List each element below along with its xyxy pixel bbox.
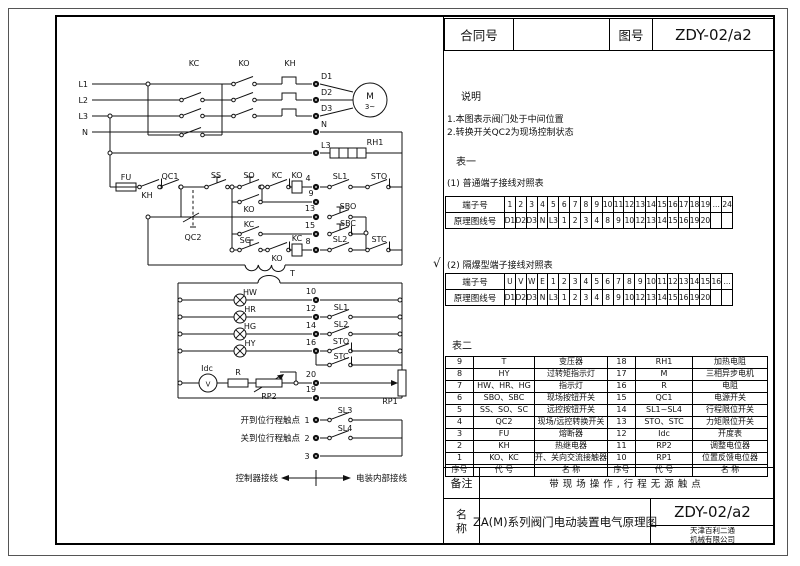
legend-internal-label: 电装内部接线 (356, 473, 408, 484)
terminal-table-row: 端子号 12345678910111213141516171819...24 (446, 197, 732, 213)
table-cell: N (538, 290, 549, 305)
hw-label: HW (243, 288, 257, 297)
close-limit-label: 关到位行程触点 (240, 433, 300, 444)
drawing-sheet: M 3~ L1 L2 L3 N KC KO KH D1 D2 D3 N L3 R… (0, 0, 800, 566)
table-cell: 16 (679, 213, 690, 228)
drawing-number: ZDY-02/a2 (651, 499, 774, 526)
seq-cell: 11 (608, 441, 636, 452)
rp2-symbol (256, 379, 282, 387)
seq-cell: 1 (446, 453, 474, 464)
legend-controller-label: 控制器接线 (235, 473, 278, 484)
table-cell: 20 (700, 290, 711, 305)
table-cell: D1 (505, 290, 516, 305)
sc-label: SC (240, 236, 251, 245)
note-item-2: 2.转换开关QC2为现场控制状态 (447, 125, 574, 138)
sbo-label: SBO (340, 202, 357, 211)
component-row: 7 HW、HR、HG 指示灯 16 R 电阻 (446, 381, 767, 393)
table-cell: D2 (516, 290, 527, 305)
name-cell: 变压器 (535, 357, 608, 368)
open-limit-label: 开到位行程触点 (240, 415, 300, 426)
row-label: 端子号 (446, 197, 505, 212)
so-label: SO (243, 171, 254, 180)
table-cell: E (538, 274, 549, 289)
name-cell: 热继电器 (535, 441, 608, 452)
name-cell: 调整电位器 (693, 441, 767, 452)
table-cell: 4 (592, 290, 603, 305)
component-row: 1 KO、KC 开、关向交流接触器 10 RP1 位置反馈电位器 (446, 453, 767, 465)
ko-interlock-label: KO (271, 254, 282, 263)
component-row: 6 SBO、SBC 现场按钮开关 15 QC1 电源开关 (446, 393, 767, 405)
company-line2: 机械有限公司 (690, 535, 735, 544)
terminal-table-row: 原理图线号 D1D2D3NL31234891012131415161920 (446, 213, 732, 228)
table-cell: 12 (635, 213, 646, 228)
table-cell: 1 (559, 290, 570, 305)
seq-cell: 17 (608, 369, 636, 380)
table-cell: 1 (559, 213, 570, 228)
code-cell: SBO、SBC (474, 393, 535, 404)
table-cell: 3 (581, 290, 592, 305)
component-row: 4 QC2 现场/远控转换开关 13 STO、STC 力矩限位开关 (446, 417, 767, 429)
name-label-char1: 名 (456, 508, 467, 522)
table-cell: 14 (690, 274, 701, 289)
component-row: 5 SS、SO、SC 远控按钮开关 14 SL1~SL4 行程限位开关 (446, 405, 767, 417)
seq-cell: 9 (446, 357, 474, 368)
table-cell: 18 (690, 197, 701, 212)
kh-label: KH (284, 59, 295, 68)
name-cell: 现场/远控转换开关 (535, 417, 608, 428)
table-cell: 7 (614, 274, 625, 289)
table-cell: ... (722, 274, 732, 289)
table-cell: 16 (711, 274, 722, 289)
table-cell: 12 (635, 290, 646, 305)
table-cell: 15 (700, 274, 711, 289)
sl1-lamp-label: SL1 (334, 303, 349, 312)
terminal-15-label: 15 (305, 221, 315, 230)
name-cell: 开、关向交流接触器 (535, 453, 608, 464)
name-label-char2: 称 (456, 522, 467, 536)
table-cell: V (516, 274, 527, 289)
contract-label: 合同号 (445, 19, 514, 50)
sl2-lamp-label: SL2 (334, 320, 349, 329)
table-cell (711, 290, 722, 305)
table-cell: W (527, 274, 538, 289)
table2-heading: 表二 (452, 337, 472, 352)
kc-aux-label: KC (244, 220, 255, 229)
name-cell: 现场按钮开关 (535, 393, 608, 404)
seq-cell: 15 (608, 393, 636, 404)
table-cell: 5 (548, 197, 559, 212)
name-cell: 力矩限位开关 (693, 417, 767, 428)
code-cell: Idc (636, 429, 693, 440)
terminal-1-label: 1 (304, 416, 309, 425)
code-cell: QC2 (474, 417, 535, 428)
table-cell (722, 290, 732, 305)
kh-contact-label: KH (141, 191, 152, 200)
drawing-no-label: 图号 (610, 19, 653, 50)
table-cell: 2 (570, 213, 581, 228)
terminal-table-normal: 端子号 12345678910111213141516171819...24 原… (445, 196, 733, 229)
motor-phase-label: 3~ (365, 103, 375, 111)
table-cell: 6 (559, 197, 570, 212)
name-cell: 指示灯 (535, 381, 608, 392)
title-block-footer: 备注 带现场操作,行程无源触点 名 称 ZA(M)系列阀门电动装置电气原理图 Z… (443, 467, 775, 545)
remark-row: 备注 带现场操作,行程无源触点 (444, 468, 774, 499)
table-cell: 10 (603, 197, 614, 212)
table-cell: 11 (614, 197, 625, 212)
table-cell: 20 (700, 213, 711, 228)
idc-label: Idc (201, 364, 213, 373)
table-cell: 9 (614, 213, 625, 228)
name-cell: 过转矩指示灯 (535, 369, 608, 380)
table-cell: 10 (624, 290, 635, 305)
terminal-3-label: 3 (304, 452, 309, 461)
code-cell: T (474, 357, 535, 368)
table-cell: 19 (700, 197, 711, 212)
terminal-13-label: 13 (305, 204, 315, 213)
table-cell: 1 (505, 197, 516, 212)
name-cell: 三相异步电机 (693, 369, 767, 380)
table-cell: 15 (657, 197, 668, 212)
terminal-16-label: 16 (306, 338, 316, 347)
wire-numbers: D1D2D3NL31234891012131415161920 (505, 290, 732, 305)
rp1-label: RP1 (382, 397, 397, 406)
seq-cell: 14 (608, 405, 636, 416)
terminal-numbers: 12345678910111213141516171819...24 (505, 197, 732, 212)
company-line1: 天津百利二通 (690, 526, 735, 535)
terminal-l3-label: L3 (321, 141, 331, 150)
name-cell: 加热电阻 (693, 357, 767, 368)
note-item-1: 1.本图表示阀门处于中间位置 (447, 112, 564, 125)
table-cell: 19 (690, 290, 701, 305)
ko-coil-symbol (292, 181, 302, 193)
code-cell: STO、STC (636, 417, 693, 428)
table-cell: 16 (668, 197, 679, 212)
name-cell: 电阻 (693, 381, 767, 392)
table-cell: 1 (548, 274, 559, 289)
remark-label: 备注 (444, 468, 480, 498)
table-cell: 19 (690, 213, 701, 228)
terminal-9-label: 9 (308, 189, 313, 198)
terminal-n-label: N (321, 120, 327, 129)
seq-cell: 10 (608, 453, 636, 464)
ko-aux-label: KO (243, 205, 254, 214)
table-cell: 14 (657, 213, 668, 228)
table1-heading: 表一 (456, 153, 476, 168)
table-cell: 16 (679, 290, 690, 305)
table-cell: 15 (668, 213, 679, 228)
sl3-label: SL3 (338, 406, 353, 415)
drawing-no-value: ZDY-02/a2 (653, 19, 774, 50)
table-cell: 3 (527, 197, 538, 212)
table-cell: 13 (646, 213, 657, 228)
table-cell: L3 (548, 290, 559, 305)
panel-divider (443, 15, 444, 545)
motor-label: M (366, 92, 374, 102)
table-cell: 13 (646, 290, 657, 305)
legend-left-arrow (281, 475, 289, 481)
terminal-table-row: 原理图线号 D1D2D3NL31234891012131415161920 (446, 290, 732, 305)
r-label: R (235, 368, 241, 377)
table-cell: ... (711, 197, 722, 212)
wire-numbers: D1D2D3NL31234891012131415161920 (505, 213, 732, 228)
company-name: 天津百利二通 机械有限公司 (651, 526, 774, 545)
line-l1-label: L1 (78, 80, 88, 89)
table-cell: D3 (527, 213, 538, 228)
wiring-legend (283, 470, 349, 486)
name-cell: 位置反馈电位器 (693, 453, 767, 464)
row-label: 原理图线号 (446, 290, 505, 305)
sl2-label: SL2 (333, 235, 348, 244)
code-cell: HY (474, 369, 535, 380)
sto-lamp-label: STO (333, 337, 349, 346)
table-cell: 10 (624, 213, 635, 228)
terminal-numbers: UVWE12345678910111213141516... (505, 274, 732, 289)
table-cell: 9 (614, 290, 625, 305)
name-cell: 远控按钮开关 (535, 405, 608, 416)
table-cell: 7 (570, 197, 581, 212)
table-cell: 5 (592, 274, 603, 289)
table-cell: 2 (570, 290, 581, 305)
table-cell: D1 (505, 213, 516, 228)
component-row: 3 FU 熔断器 12 Idc 开度表 (446, 429, 767, 441)
contract-value (514, 19, 610, 50)
rp1-wiper-arrow (391, 380, 398, 386)
seq-cell: 13 (608, 417, 636, 428)
seq-cell: 16 (608, 381, 636, 392)
table-cell: 9 (592, 197, 603, 212)
name-cell: 开度表 (693, 429, 767, 440)
sbc-label: SBC (340, 219, 356, 228)
terminal-14-label: 14 (306, 321, 316, 330)
terminal-10-label: 10 (306, 287, 316, 296)
table-cell: 15 (668, 290, 679, 305)
table-cell: 13 (679, 274, 690, 289)
table-cell: 14 (657, 290, 668, 305)
seq-cell: 12 (608, 429, 636, 440)
table-cell: D3 (527, 290, 538, 305)
seq-cell: 18 (608, 357, 636, 368)
title-strip: 合同号 图号 ZDY-02/a2 (444, 18, 775, 51)
table-cell (722, 213, 732, 228)
table-cell: 4 (581, 274, 592, 289)
terminal-20-label: 20 (306, 370, 316, 379)
rp2-label: RP2 (261, 392, 276, 401)
kc-interlock-label: KC (272, 171, 283, 180)
table-cell: 10 (646, 274, 657, 289)
code-cell: R (636, 381, 693, 392)
component-row: 2 KH 热继电器 11 RP2 调整电位器 (446, 441, 767, 453)
sto-label: STO (371, 172, 387, 181)
terminal-12-label: 12 (306, 304, 316, 313)
ko-label: KO (238, 59, 249, 68)
control-wiring (110, 187, 402, 283)
code-cell: M (636, 369, 693, 380)
terminal-4-label: 4 (305, 174, 310, 183)
sl1-label: SL1 (333, 172, 348, 181)
table-cell: 8 (603, 290, 614, 305)
hg-label: HG (244, 322, 256, 331)
table-cell: 24 (722, 197, 732, 212)
seq-cell: 7 (446, 381, 474, 392)
seq-cell: 5 (446, 405, 474, 416)
code-cell: RH1 (636, 357, 693, 368)
name-cell: 熔断器 (535, 429, 608, 440)
table-cell: 8 (603, 213, 614, 228)
table-cell: 8 (581, 197, 592, 212)
qc1-label: QC1 (162, 172, 179, 181)
table-cell: 4 (592, 213, 603, 228)
table-cell: 12 (668, 274, 679, 289)
remark-text: 带现场操作,行程无源触点 (480, 468, 774, 498)
row-label: 端子号 (446, 274, 505, 289)
kc-coil-label: KC (292, 234, 303, 243)
terminal-d1-label: D1 (321, 72, 332, 81)
table-cell: 2 (559, 274, 570, 289)
ko-coil-label: KO (291, 171, 302, 180)
table-cell: 17 (679, 197, 690, 212)
qc2-label: QC2 (185, 233, 202, 242)
component-table: 9 T 变压器 18 RH1 加热电阻 8 HY 过转矩指示灯 17 M 三相异… (445, 356, 768, 477)
hr-label: HR (244, 305, 256, 314)
kc-coil-symbol (292, 244, 302, 256)
sl4-label: SL4 (338, 424, 353, 433)
table-cell: 2 (516, 197, 527, 212)
code-cell: RP1 (636, 453, 693, 464)
name-row: 名 称 ZA(M)系列阀门电动装置电气原理图 ZDY-02/a2 天津百利二通 … (444, 499, 774, 545)
limit-wiring (320, 420, 402, 456)
component-row: 9 T 变压器 18 RH1 加热电阻 (446, 357, 767, 369)
code-cell: KH (474, 441, 535, 452)
table-cell: L3 (548, 213, 559, 228)
rh1-label: RH1 (367, 138, 384, 147)
code-cell: KO、KC (474, 453, 535, 464)
seq-cell: 4 (446, 417, 474, 428)
code-cell: QC1 (636, 393, 693, 404)
resistor-r-symbol (228, 379, 248, 387)
terminal-19-label: 19 (306, 385, 316, 394)
table-cell: 9 (635, 274, 646, 289)
table1-sub2-caption: (2) 隔爆型端子接线对照表 (447, 258, 553, 271)
seq-cell: 3 (446, 429, 474, 440)
table-cell: 3 (570, 274, 581, 289)
name-cell: 行程限位开关 (693, 405, 767, 416)
table-cell: 3 (581, 213, 592, 228)
table-cell: 6 (603, 274, 614, 289)
table-cell: 11 (657, 274, 668, 289)
code-cell: SL1~SL4 (636, 405, 693, 416)
terminal-table-row: 端子号 UVWE12345678910111213141516... (446, 274, 732, 290)
seq-cell: 8 (446, 369, 474, 380)
terminal-8-label: 8 (305, 237, 310, 246)
name-cell: 电源开关 (693, 393, 767, 404)
table-cell: 8 (624, 274, 635, 289)
code-cell: HW、HR、HG (474, 381, 535, 392)
transformer-label: T (289, 269, 295, 278)
table-cell (711, 213, 722, 228)
line-l3-label: L3 (78, 112, 88, 121)
seq-cell: 2 (446, 441, 474, 452)
hy-label: HY (245, 339, 256, 348)
checkmark: √ (433, 256, 441, 270)
legend-right-arrow (343, 475, 351, 481)
stc-lamp-label: STC (333, 352, 348, 361)
table-cell: U (505, 274, 516, 289)
fu-label: FU (121, 173, 132, 182)
table-cell: 12 (624, 197, 635, 212)
stc-label: STC (371, 235, 386, 244)
line-l2-label: L2 (78, 96, 88, 105)
code-cell: RP2 (636, 441, 693, 452)
ss-label: SS (211, 171, 221, 180)
terminal-d2-label: D2 (321, 88, 332, 97)
seq-cell: 6 (446, 393, 474, 404)
rp1-symbol (398, 370, 406, 396)
name-right: ZDY-02/a2 天津百利二通 机械有限公司 (651, 499, 774, 545)
row-label: 原理图线号 (446, 213, 505, 228)
code-cell: SS、SO、SC (474, 405, 535, 416)
table-cell: D2 (516, 213, 527, 228)
table-cell: 14 (646, 197, 657, 212)
code-cell: FU (474, 429, 535, 440)
terminal-table-explosion-proof: 端子号 UVWE12345678910111213141516... 原理图线号… (445, 273, 733, 306)
table1-sub1-caption: (1) 普通端子接线对照表 (447, 176, 544, 189)
table-cell: N (538, 213, 549, 228)
drawing-title: ZA(M)系列阀门电动装置电气原理图 (480, 499, 651, 545)
kc-label: KC (189, 59, 200, 68)
component-row: 8 HY 过转矩指示灯 17 M 三相异步电机 (446, 369, 767, 381)
table-cell: 4 (538, 197, 549, 212)
meter-v-label: V (206, 381, 211, 389)
terminal-2-label: 2 (304, 434, 309, 443)
terminal-d3-label: D3 (321, 104, 332, 113)
circuit-diagram: M 3~ L1 L2 L3 N KC KO KH D1 D2 D3 N L3 R… (55, 15, 443, 545)
notes-heading: 说明 (461, 88, 481, 103)
line-n-label: N (82, 128, 88, 137)
table-cell: 13 (635, 197, 646, 212)
